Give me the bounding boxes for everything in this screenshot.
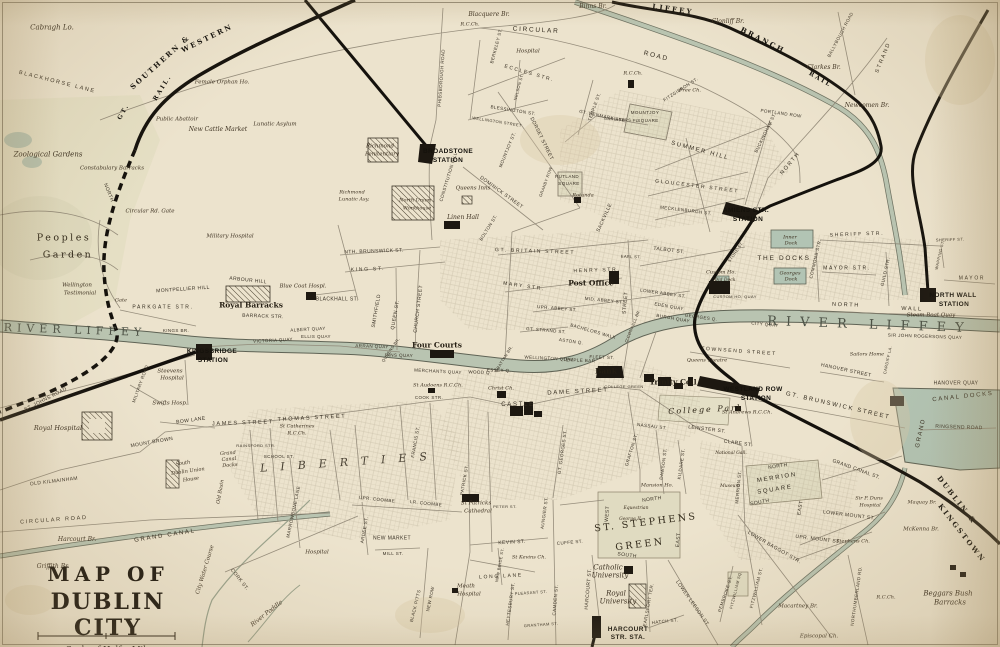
map-label: Barracks (934, 600, 966, 607)
map-label: SQUARE (757, 484, 793, 495)
map-label: BALLYBOUGH ROAD (827, 12, 855, 59)
map-label: Macartney Br. (778, 604, 818, 610)
map-label: GT. STRAND ST. (526, 327, 566, 335)
map-label: City Water Course (196, 545, 216, 595)
map-label: STATION (198, 358, 228, 365)
map-label: CASTLE (501, 402, 535, 408)
map-label: RUTLAND (555, 175, 579, 180)
map-label: Sir P. Duns (855, 497, 883, 502)
map-label: University (592, 573, 629, 580)
map-label: CORK ST. (229, 568, 249, 592)
map-label: NORTH WALL (929, 293, 976, 300)
map-label: NORTH (780, 152, 802, 177)
map-label: PATRICK ST. (460, 464, 470, 495)
map-label: SOUTHERN & (129, 34, 191, 91)
map-label: CARDIFF LA. (883, 345, 893, 374)
map-label: RINGSEND ROAD (935, 425, 983, 432)
map-label: QUEEN ST. (391, 300, 401, 330)
map-label: Equestrian (623, 507, 648, 512)
map-label: NTH. BRUNSWICK ST. (344, 248, 404, 255)
map-label: Binns Br. (579, 4, 607, 10)
title-block: MAP OF DUBLIN CITY Scale of Half a Mile (18, 562, 198, 647)
map-label: GRANBY ROW (539, 166, 554, 197)
map-label: PETER ST. (493, 505, 517, 509)
map-label: GLOUCESTER STREET (655, 179, 739, 194)
map-label: UPR. ABBEY ST. (537, 305, 577, 313)
map-label: Linen Hall (447, 215, 479, 221)
map-label: MECKLENBURGH ST. (660, 206, 712, 217)
map-label: BOLTON ST. (479, 214, 499, 242)
map-label: NORTH (642, 496, 662, 504)
map-label: LEINSTER ST. (688, 425, 726, 435)
map-label: RAIL. (153, 74, 174, 102)
map-label: TOWNSEND STREET (701, 347, 777, 357)
map-label: WEST (605, 506, 611, 522)
map-label: Richmond (339, 191, 365, 196)
map-label: GT. BRUNSWICK STREET (785, 391, 891, 421)
map-label: Catholic (593, 565, 622, 572)
map-label: MOUNTJOY (631, 111, 659, 116)
map-label: OLD KILMAINHAM (30, 477, 79, 488)
map-label: BRANCH (740, 26, 787, 54)
map-label: LIFFEY (652, 3, 694, 16)
map-label: University (600, 599, 637, 606)
map-label: AMIENS STR. (723, 208, 769, 215)
map-label: NEW MARKET (373, 537, 411, 542)
map-label: Royal Hospital (34, 425, 82, 432)
map-label: LOWER MOUNT ST. (823, 510, 876, 521)
map-label: BARRACK STR. (242, 314, 284, 320)
map-label: Maquay Br. (907, 501, 936, 506)
map-label: QUEENS BR. (381, 337, 401, 363)
map-label: FITZWILLIAM ST. (750, 567, 764, 609)
map-label: Christ Ch. (488, 387, 514, 392)
map-label: New Cattle Market (189, 127, 247, 133)
map-label: DUBLIN & (936, 475, 978, 526)
map-label: CITY QUAY (751, 322, 779, 329)
map-label: LOWER BAGGOT STR. (747, 531, 802, 566)
map-label: MARROWBONE LANE (286, 486, 301, 539)
map-label: STATION (433, 158, 463, 165)
dublin-city-map: Cabragh Lo.BLACKHORSE LANEGT.SOUTHERN &W… (0, 0, 1000, 647)
map-label: SHERIFF STR. (830, 232, 885, 239)
map-label: PHIBSBOROUGH ROAD (438, 49, 447, 107)
map-label: Blue Coat Hospl. (279, 284, 326, 290)
map-label: MERCHANTS QUAY (414, 369, 462, 376)
map-label: STORE ST. (727, 241, 744, 263)
map-label: St Audoens R.C.Ch. (413, 384, 463, 389)
map-label: KINGSBRIDGE (187, 349, 237, 356)
map-label: Beggars Bush (923, 591, 972, 598)
map-label: STREET (623, 292, 630, 314)
map-label: RAINSFORD STR. (236, 444, 275, 448)
map-label: Gate (115, 299, 127, 304)
map-label: MAYOR (959, 277, 985, 282)
map-label: South (175, 460, 190, 467)
map-label: Bank (595, 367, 617, 375)
map-label: KILDARE ST. (678, 448, 687, 480)
map-label: ARRAN QUAY (355, 344, 389, 350)
map-label: PORTLAND ROW (760, 109, 802, 119)
map-label: INNS QUAY (385, 353, 413, 358)
map-label: GT. (117, 103, 131, 121)
map-label: GRANTHAM ST. (524, 622, 559, 628)
map-label: NELSON ST. (514, 73, 525, 100)
map-label: SIR JOHN ROGERSONS QUAY (888, 333, 963, 340)
map-label: St Andrews R.C.Ch. (722, 411, 772, 416)
map-label: Docks (222, 463, 238, 469)
map-label: ECCLES STR. (504, 64, 555, 83)
map-label: MILITARY ROAD (132, 365, 150, 404)
map-label: Harcourt Br. (58, 537, 96, 543)
map-label: NORTH (768, 463, 788, 471)
map-label: Dublin Union (171, 467, 205, 477)
map-label: GREEN (615, 537, 665, 552)
map-label: Hospital (457, 592, 480, 598)
map-label: North Union (399, 199, 431, 204)
map-label: GRAND CANAL ST. (831, 459, 880, 481)
map-label: McKenna Br. (903, 527, 939, 533)
map-label: THE DOCKS (757, 256, 810, 263)
map-label: Mansion Ho. (641, 484, 673, 489)
map-label: SOUTH (617, 552, 637, 559)
map-label: PARKGATE STR. (132, 306, 193, 311)
map-label: SQUARE (637, 119, 658, 124)
map-label: CUFFE ST. (557, 540, 584, 547)
map-label: KINGS BR. (163, 329, 189, 334)
map-label: COMMONS STR. (809, 239, 822, 279)
map-label: STR. STA. (611, 635, 646, 642)
map-title-line2: DUBLIN CITY (18, 589, 198, 641)
map-label: MAYOR STR. (823, 267, 871, 272)
map-label: EDEN QUAY (654, 302, 684, 312)
map-label: DORSET STREET (528, 117, 553, 161)
map-label: MOUNT BROWN (130, 437, 173, 449)
map-label: Dock (785, 242, 798, 247)
map-label: STATION (939, 302, 969, 309)
map-label: BUCKINGHAM ST. (754, 112, 777, 153)
map-label: Peoples (37, 233, 91, 243)
map-label: Dock (785, 278, 798, 283)
map-label: GUILD STR. (881, 257, 892, 287)
map-label: National Gall. (715, 452, 747, 457)
map-title-line1: MAP OF (18, 562, 198, 586)
map-label: MOUNTJOY ST. (499, 132, 517, 169)
map-label: St Catherines (280, 425, 315, 430)
map-label: Swifts Hosp. (152, 401, 187, 407)
map-label: TALBOT ST. (653, 247, 685, 256)
map-label: Queens Theatre (687, 359, 727, 364)
map-label: MID. ABBEY ST. (584, 297, 623, 306)
map-label: LOWER ABBEY ST. (640, 289, 686, 300)
map-label: HENRY STR. (573, 268, 620, 275)
map-label: Lunatic Asylum (253, 122, 296, 128)
map-label: Stephens Ch. (836, 540, 870, 545)
map-label: BROADSTONE (423, 149, 473, 156)
map-label: CUSTOM HO. QUAY (713, 295, 757, 299)
map-label: Workhouse (403, 207, 431, 212)
map-label: Trinity Coll (649, 378, 696, 386)
map-label: Blacquere Br. (468, 12, 509, 18)
map-label: Rotunda (572, 194, 593, 199)
map-label: Richmond (366, 144, 394, 150)
map-label: Lunatic Asy. (339, 198, 370, 203)
map-label: LR. COOMBE (410, 500, 443, 508)
map-label: Steevens (157, 369, 182, 375)
map-label: NORTH (102, 183, 114, 203)
map-label: Custom Ho. (706, 271, 736, 276)
map-label: BACHELORS WALK (570, 323, 617, 340)
map-label: Constabulary Barracks (80, 166, 144, 172)
map-label: Royal (606, 591, 626, 598)
map-label: KEVIN ST. (498, 540, 525, 546)
map-label: Hospital (305, 550, 328, 556)
map-label: MILL ST. (383, 552, 404, 557)
map-label: Female Orphan Ho. (195, 80, 250, 86)
map-label: HEYTESBURY ST. (506, 582, 517, 626)
map-label: ST. JOHNS ROAD (24, 387, 68, 413)
map-label: BLACKHORSE LANE (18, 71, 96, 95)
map-label: WAPPING ST. (935, 240, 946, 270)
map-label: Clonliff Br. (712, 19, 745, 25)
map-label: RAIL (807, 71, 832, 89)
map-labels-layer: Cabragh Lo.BLACKHORSE LANEGT.SOUTHERN &W… (0, 0, 1000, 647)
map-label: HANOVER QUAY (934, 382, 979, 387)
map-label: EAST (676, 532, 682, 547)
map-label: Testimonial (64, 291, 96, 297)
map-label: Queens Inns (456, 186, 491, 192)
map-label: Episcopal Ch. (800, 634, 838, 640)
map-label: River Poddle (250, 600, 284, 629)
map-label: R.C.Ch. (287, 432, 306, 437)
map-label: Post Office (568, 279, 614, 287)
map-label: NEW ROW (426, 586, 436, 612)
map-label: GT. GEORGES ST. (558, 430, 569, 475)
map-label: St Patricks (461, 501, 491, 507)
map-label: BOW LANE (176, 416, 206, 425)
map-label: UPR. MOUNT ST. (795, 535, 841, 546)
map-label: CAMDEN ST. (552, 584, 559, 616)
map-label: Public Abattoir (156, 117, 198, 123)
map-label: Hospital (160, 376, 183, 382)
map-label: ARDEE ST. (360, 516, 369, 543)
map-label: BLESSINGTON ST. (490, 105, 536, 117)
map-label: ASTON Q. (558, 338, 583, 346)
map-label: Steam Boat Quay (907, 313, 956, 319)
map-label: R.C.Ch. (623, 72, 642, 77)
map-label: NORTH (832, 303, 860, 309)
map-label: Penitentiary (365, 152, 399, 158)
map-label: Zoological Gardens (14, 152, 83, 159)
map-label: SUMMER HILL (670, 140, 729, 161)
map-label: Cabragh Lo. (30, 25, 74, 32)
map-label: Hospital (859, 504, 880, 509)
map-label: GRAFTON ST. (625, 433, 639, 467)
map-label: Sailors Home (850, 353, 884, 358)
map-label: Hospital (516, 49, 539, 55)
map-label: BLACK PITTS (410, 589, 422, 622)
map-label: CIRCULAR (512, 27, 559, 36)
map-label: CIRCULAR ROAD (20, 516, 88, 526)
map-label: Old Basin (216, 479, 225, 504)
map-label: THOMAS STREET (277, 414, 346, 423)
map-label: ALBERT QUAY (290, 327, 326, 333)
map-label: NASSAU ST. (637, 423, 668, 431)
map-label: GRAND CANAL (134, 528, 196, 544)
map-label: WESTLAND ROW (723, 387, 782, 394)
map-label: Meath (457, 584, 475, 590)
map-label: Garden (43, 250, 94, 260)
map-label: MONTPELLIER HILL (156, 286, 210, 295)
map-label: SMITHFIELD (372, 294, 383, 328)
map-label: SACKVILLE (596, 203, 613, 233)
map-label: UPR. COOMBE (359, 496, 396, 504)
map-label: GRAND (915, 418, 927, 449)
map-label: RIVER LIFFEY (4, 322, 147, 338)
map-label: LONG LANE (479, 573, 523, 580)
map-label: R.C.Ch. (876, 596, 895, 601)
map-label: AUNGIER ST. (540, 497, 549, 530)
map-label: St Kevins Ch. (512, 556, 546, 561)
map-label: Cathedral (464, 509, 492, 515)
map-label: FLEET ST. (589, 355, 614, 360)
map-label: R.C.Ch. (460, 23, 479, 28)
map-label: EARL ST. (621, 255, 642, 260)
map-label: CLARE ST. (723, 440, 752, 449)
map-label: ARBOUR HILL (229, 277, 267, 286)
map-label: PLEASANT ST. (515, 590, 548, 596)
map-label: HANOVER STREET (820, 363, 871, 379)
map-label: Royal Barracks (219, 301, 283, 309)
map-label: ELLIS QUAY (301, 335, 331, 340)
map-label: MERRION ST. (735, 470, 742, 504)
map-label: Four Courts (412, 341, 462, 349)
map-label: SCHOOL ST. (264, 455, 295, 460)
map-label: CANAL DOCKS (932, 391, 994, 403)
map-label: SOUTH (750, 499, 770, 508)
map-label: GT. BRITAIN STREET (495, 248, 575, 256)
map-label: NORTHUMBERLAND RD. (851, 566, 864, 626)
map-label: HARCOURT (608, 627, 648, 634)
map-label: KING ST. (351, 267, 386, 273)
map-label: STRAND (875, 42, 892, 74)
map-label: Old Dock (714, 279, 735, 284)
map-label: LOWER LEESON ST. (674, 580, 710, 628)
map-label: BERKELEY ST. (490, 28, 504, 64)
map-label: Circular Rd. Gate (126, 209, 175, 215)
map-label: WELLINGTON STREET (472, 116, 522, 128)
map-label: Military Hospital (206, 234, 253, 240)
map-label: DOMINICK STREET (478, 176, 523, 211)
map-label: Newcomen Br. (845, 103, 889, 109)
map-label: DAME STREET (547, 387, 609, 396)
map-label: MARY STR. (503, 282, 546, 293)
map-label: CHURCH STREET (414, 285, 425, 333)
map-label: George II (619, 518, 641, 523)
map-label: COOK STR. (415, 396, 443, 401)
map-label: ROAD (643, 51, 669, 63)
map-label: DAWSON ST. (660, 448, 669, 480)
map-label: HATCH ST. (652, 618, 679, 625)
map-label: VICTORIA QUAY (253, 338, 293, 345)
map-label: House (183, 476, 200, 483)
map-label: Wellington (62, 283, 92, 289)
map-label: JAMES STREET (212, 420, 274, 428)
map-label: STATION (733, 217, 763, 224)
map-label: MERRION (757, 472, 798, 484)
map-label: BLACKHALL ST. (316, 298, 359, 303)
map-label: STATION (741, 396, 771, 403)
map-label: COLLEGE GREEN (604, 385, 643, 389)
map-label: SQUARE (558, 182, 579, 187)
map-label: EAST (797, 500, 804, 515)
